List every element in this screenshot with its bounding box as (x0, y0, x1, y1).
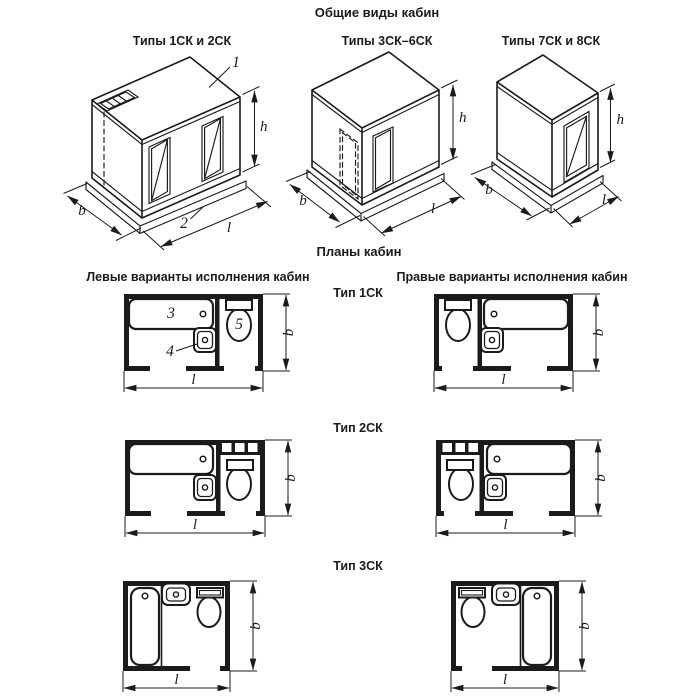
plan-2sk-left: bl (125, 440, 299, 537)
dim-label-h: h (459, 110, 467, 126)
wall (123, 581, 128, 671)
bath-drain (494, 456, 500, 462)
plan-1sk-right: bl (434, 294, 607, 392)
dim-label-l: l (602, 192, 606, 208)
vent-opening (443, 443, 453, 452)
width-dimension-line (475, 178, 532, 217)
washbasin-drain (202, 485, 207, 490)
door-opening (564, 112, 589, 183)
dim-label-l: l (227, 220, 231, 236)
general-views-title: Общие виды кабин (315, 5, 440, 20)
dim-label-l: l (193, 517, 197, 533)
iso-view-types-1sk-2sk: 1 2 h l b (64, 54, 272, 250)
bath-drain (491, 311, 497, 317)
washbasin-drain (489, 337, 494, 342)
dim-label-b: b (485, 182, 493, 198)
toilet-cistern (227, 460, 253, 470)
bath-drain (200, 456, 206, 462)
wall (123, 666, 190, 671)
width-dimension-line (68, 196, 122, 235)
part-label-floor: 2 (180, 215, 188, 232)
washbasin-drain (173, 592, 178, 597)
dim-label-b: b (248, 622, 264, 630)
toilet-cistern (445, 300, 471, 310)
wall (451, 581, 456, 671)
vent-opening (235, 443, 245, 452)
wall (124, 366, 150, 371)
width-extension-lines (471, 165, 550, 221)
bath-drain (534, 593, 540, 599)
length-extension-lines (554, 182, 622, 228)
dim-label-b: b (591, 328, 607, 336)
wall (256, 511, 265, 516)
dim-label-b: b (299, 193, 307, 209)
dim-label-l: l (503, 672, 507, 688)
length-dimension-line (382, 197, 462, 234)
toilet-cistern (447, 460, 473, 470)
wall (258, 294, 263, 371)
plan-views: bl345blblblblbl (123, 294, 609, 692)
washbasin-drain (492, 485, 497, 490)
caption-types-3sk-6sk: Типы 3СК–6СК (342, 34, 433, 48)
wall (547, 366, 573, 371)
wall (554, 581, 559, 671)
leader-line-2 (191, 207, 204, 220)
wall (475, 511, 513, 516)
iso-view-types-7sk-8sk: h l b (471, 55, 624, 227)
door-opening-front (373, 127, 393, 192)
toilet-bowl (462, 597, 485, 627)
right-variants-header: Правые варианты исполнения кабин (396, 270, 627, 284)
iso-view-types-3sk-6sk: h l b (286, 52, 467, 236)
wall (125, 511, 151, 516)
wall (220, 666, 230, 671)
dim-label-l: l (431, 201, 435, 217)
wall (549, 511, 575, 516)
height-extension-lines (441, 80, 458, 165)
technical-drawing-page: Общие виды кабин Типы 1СК и 2СК Типы 3СК… (0, 0, 700, 700)
width-extension-lines (64, 184, 142, 241)
door-opening-left (149, 138, 170, 204)
dim-label-b: b (78, 203, 86, 219)
type-label-1sk: Тип 1СК (333, 286, 383, 300)
dim-label-l: l (503, 517, 507, 533)
vent-opening (222, 443, 232, 452)
type-label-3sk: Тип 3СК (333, 559, 383, 573)
plan-3sk-left: bl (123, 581, 264, 692)
toilet-bowl (227, 468, 251, 500)
leader-line-1 (209, 67, 230, 88)
wall (436, 511, 444, 516)
dim-label-h: h (617, 112, 625, 128)
part-label-toilet: 5 (235, 316, 243, 333)
caption-types-1sk-2sk: Типы 1СК и 2СК (133, 34, 232, 48)
wall (451, 666, 462, 671)
dim-label-l: l (501, 372, 505, 388)
dim-label-l: l (191, 372, 195, 388)
roof-vent-grille (97, 90, 138, 111)
wall (187, 511, 225, 516)
part-label-bathtub: 3 (166, 305, 175, 322)
dim-label-b: b (593, 474, 609, 482)
plan-1sk-left: bl345 (124, 294, 297, 392)
toilet-cistern (226, 300, 252, 310)
height-extension-lines (243, 87, 260, 173)
toilet-bowl (446, 309, 470, 341)
washbasin-drain (503, 592, 508, 597)
cabin-box-outline (92, 57, 240, 218)
part-label-ceiling: 1 (232, 54, 240, 71)
dim-label-b: b (281, 328, 297, 336)
vent-opening (248, 443, 258, 452)
dim-label-h: h (260, 119, 268, 135)
dim-label-b: b (283, 474, 299, 482)
part-label-washbasin: 4 (166, 343, 174, 360)
toilet-cistern (459, 588, 485, 598)
left-variants-header: Левые варианты исполнения кабин (86, 270, 309, 284)
plans-title: Планы кабин (316, 244, 401, 259)
dim-label-l: l (174, 672, 178, 688)
dim-label-b: b (577, 622, 593, 630)
wall (434, 294, 439, 371)
door-opening-right (202, 117, 223, 182)
vent-opening (456, 443, 466, 452)
wall (473, 366, 511, 371)
type-label-2sk: Тип 2СК (333, 421, 383, 435)
toilet-bowl (198, 597, 221, 627)
height-extension-lines (600, 84, 615, 168)
wall (434, 366, 442, 371)
caption-types-7sk-8sk: Типы 7СК и 8СК (502, 34, 601, 48)
plan-2sk-right: bl (436, 440, 609, 537)
toilet-bowl (449, 468, 473, 500)
washbasin-drain (202, 337, 207, 342)
toilet-cistern (197, 588, 223, 598)
wall (225, 581, 230, 671)
length-dimension-line (570, 197, 619, 225)
bath-drain (200, 311, 206, 317)
plan-3sk-right: bl (451, 581, 593, 692)
wall (492, 666, 559, 671)
wall (186, 366, 224, 371)
drawing-canvas: Общие виды кабин Типы 1СК и 2СК Типы 3СК… (0, 0, 700, 700)
length-extension-lines (143, 187, 271, 251)
length-dimension-line (161, 202, 268, 247)
vent-opening (469, 443, 479, 452)
bath-drain (142, 593, 148, 599)
width-extension-lines (286, 172, 360, 228)
wall (255, 366, 263, 371)
